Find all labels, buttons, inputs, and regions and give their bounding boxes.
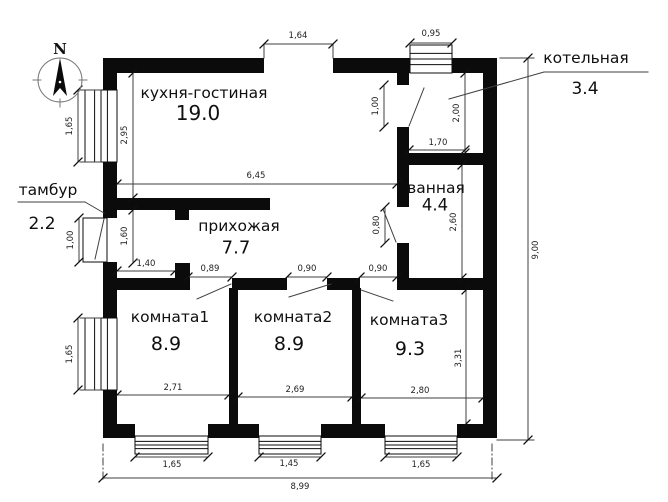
wall-segment bbox=[229, 288, 238, 424]
door-frame bbox=[83, 218, 107, 262]
dimension-label: 1,60 bbox=[120, 227, 130, 246]
dimension-label: 1,65 bbox=[65, 345, 75, 364]
wall-segment bbox=[483, 58, 497, 438]
room-name: ванная bbox=[407, 179, 465, 197]
leader-line-vestibule bbox=[85, 202, 104, 213]
room-name: прихожая bbox=[198, 217, 280, 235]
dimension-label: 0,95 bbox=[422, 29, 441, 39]
dimension-label: 1,45 bbox=[280, 459, 299, 469]
dimension-label: 6,45 bbox=[247, 171, 266, 181]
room-area: 3.4 bbox=[571, 79, 598, 99]
wall-segment bbox=[232, 278, 287, 290]
dimension-label: 2,60 bbox=[449, 213, 459, 232]
dimension-label: 2,69 bbox=[286, 385, 305, 395]
dimension-label: 2,80 bbox=[411, 386, 430, 396]
door-leaf bbox=[409, 88, 424, 126]
dimension-label: 2,71 bbox=[164, 383, 183, 393]
dimension-label: 9,00 bbox=[531, 241, 541, 260]
dimension-label: 2,95 bbox=[120, 126, 130, 145]
compass-pivot bbox=[59, 81, 62, 84]
room-name: комната2 bbox=[254, 308, 333, 326]
wall-segment bbox=[397, 153, 483, 165]
dimension-label: 1,00 bbox=[66, 231, 76, 250]
wall-segment bbox=[103, 278, 188, 290]
dimension-label: 0,90 bbox=[369, 264, 388, 274]
room-area: 9.3 bbox=[395, 338, 425, 360]
wall-segment bbox=[397, 73, 409, 85]
room-area: 2.2 bbox=[28, 214, 55, 234]
wall-segment bbox=[175, 210, 189, 220]
wall-segment bbox=[103, 198, 270, 210]
dimension-label: 3,31 bbox=[454, 349, 464, 368]
dimension-label: 2,00 bbox=[452, 104, 462, 123]
dimension-label: 8,99 bbox=[291, 482, 310, 492]
dimension-label: 1,64 bbox=[289, 31, 308, 41]
floor-plan: 1,640,951,652,956,451,002,001,702,600,80… bbox=[0, 0, 668, 502]
dimension-label: 1,70 bbox=[429, 138, 448, 148]
room-name: кухня-гостиная bbox=[141, 84, 268, 102]
room-name: котельная bbox=[543, 49, 628, 67]
wall-segment bbox=[397, 278, 483, 290]
dimension-label: 1,65 bbox=[163, 460, 182, 470]
room-area: 7.7 bbox=[222, 238, 251, 259]
wall-segment bbox=[333, 58, 410, 73]
door-leaf bbox=[289, 284, 331, 297]
room-area: 8.9 bbox=[151, 333, 181, 355]
room-area: 4.4 bbox=[422, 196, 448, 215]
dimension-label: 1,00 bbox=[371, 97, 381, 116]
floor-plan-svg: 1,640,951,652,956,451,002,001,702,600,80… bbox=[0, 0, 668, 502]
wall-segment bbox=[352, 288, 361, 424]
room-name: комната3 bbox=[370, 311, 449, 329]
dimension-label: 0,89 bbox=[201, 264, 220, 274]
room-name: тамбур bbox=[19, 181, 78, 199]
room-name: комната1 bbox=[131, 308, 210, 326]
wall-segment bbox=[208, 424, 259, 438]
dimension-label: 1,65 bbox=[412, 460, 431, 470]
dimension-label: 0,90 bbox=[298, 264, 317, 274]
wall-segment bbox=[103, 424, 135, 438]
wall-segment bbox=[103, 58, 264, 73]
dimension-label: 1,40 bbox=[137, 259, 156, 269]
door-leaf bbox=[197, 284, 231, 299]
wall-segment bbox=[103, 58, 117, 92]
compass-north-label: N bbox=[53, 40, 67, 58]
room-area: 19.0 bbox=[176, 101, 221, 125]
wall-segment bbox=[321, 424, 385, 438]
room-area: 8.9 bbox=[274, 333, 304, 355]
door-leaf bbox=[361, 290, 393, 301]
dimension-label: 1,65 bbox=[65, 117, 75, 136]
compass-needle-icon bbox=[53, 58, 67, 96]
dimension-label: 0,80 bbox=[372, 216, 382, 235]
